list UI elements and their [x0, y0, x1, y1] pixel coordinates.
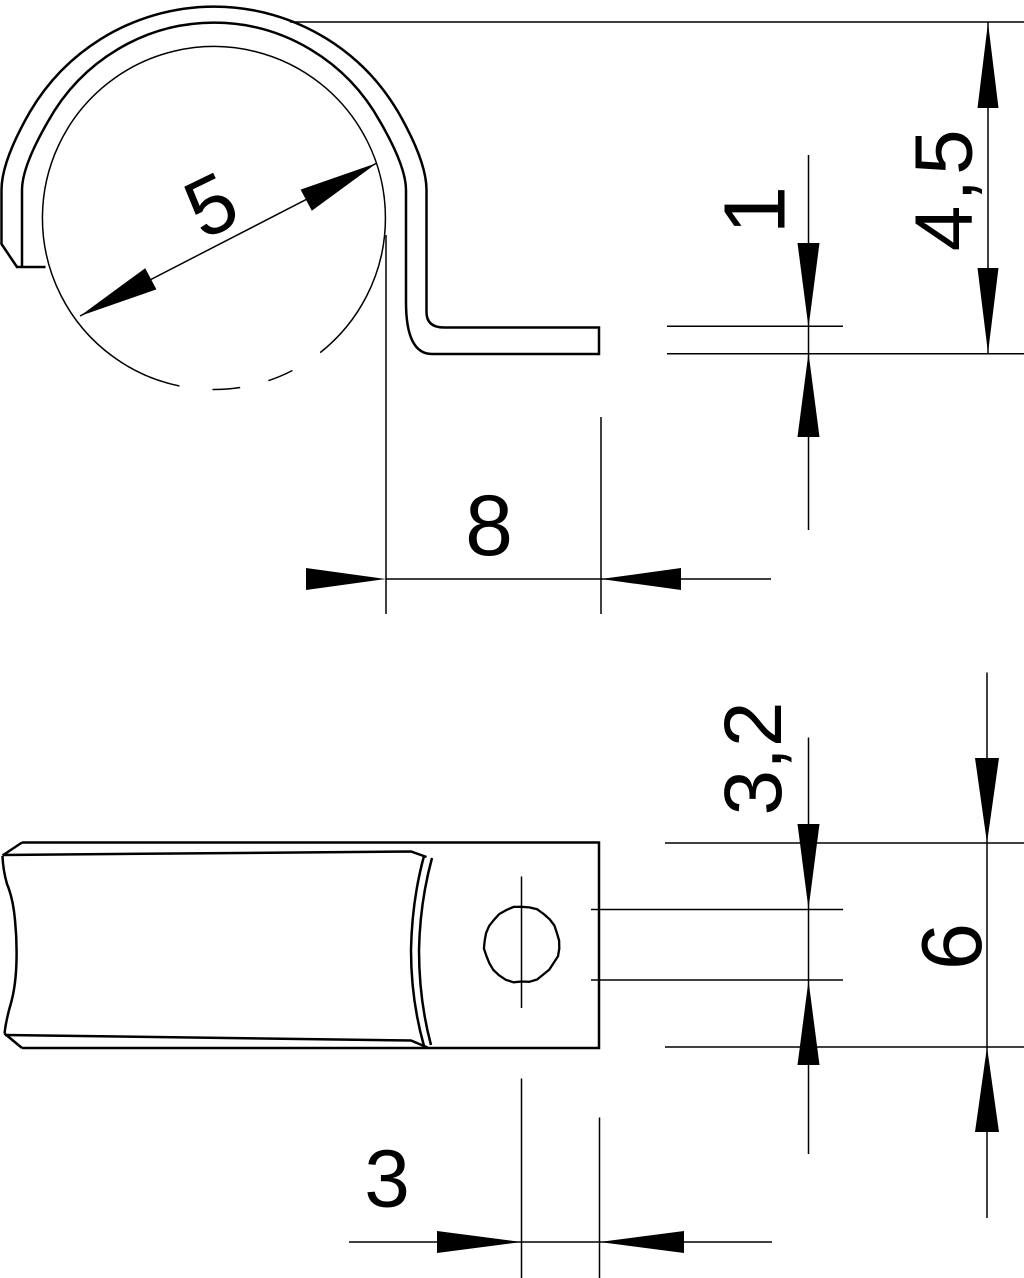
svg-text:3: 3	[364, 1134, 410, 1225]
svg-text:6: 6	[905, 923, 1000, 970]
svg-text:4,5: 4,5	[898, 125, 989, 251]
svg-text:3,2: 3,2	[708, 702, 799, 816]
svg-text:8: 8	[465, 478, 513, 574]
svg-text:1: 1	[707, 186, 804, 234]
